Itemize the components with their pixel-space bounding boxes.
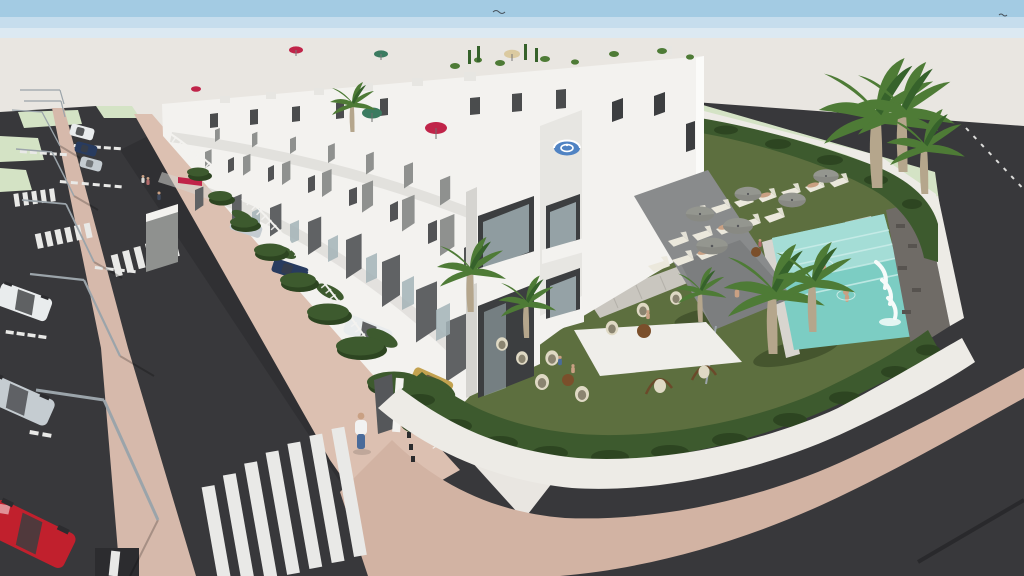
round-table-3 (751, 247, 761, 257)
left-annex-building (146, 204, 178, 272)
sky (0, 0, 1024, 40)
waterfall-foam (879, 318, 901, 326)
round-table-2 (637, 324, 651, 338)
terrace-parasol-blue-striped (554, 141, 580, 156)
render-viewport: Computer-generated aerial view of a mode… (0, 0, 1024, 576)
round-table-1 (562, 374, 574, 386)
terrace-parasol-crimson-far (191, 86, 201, 92)
architectural-render (0, 0, 1024, 576)
